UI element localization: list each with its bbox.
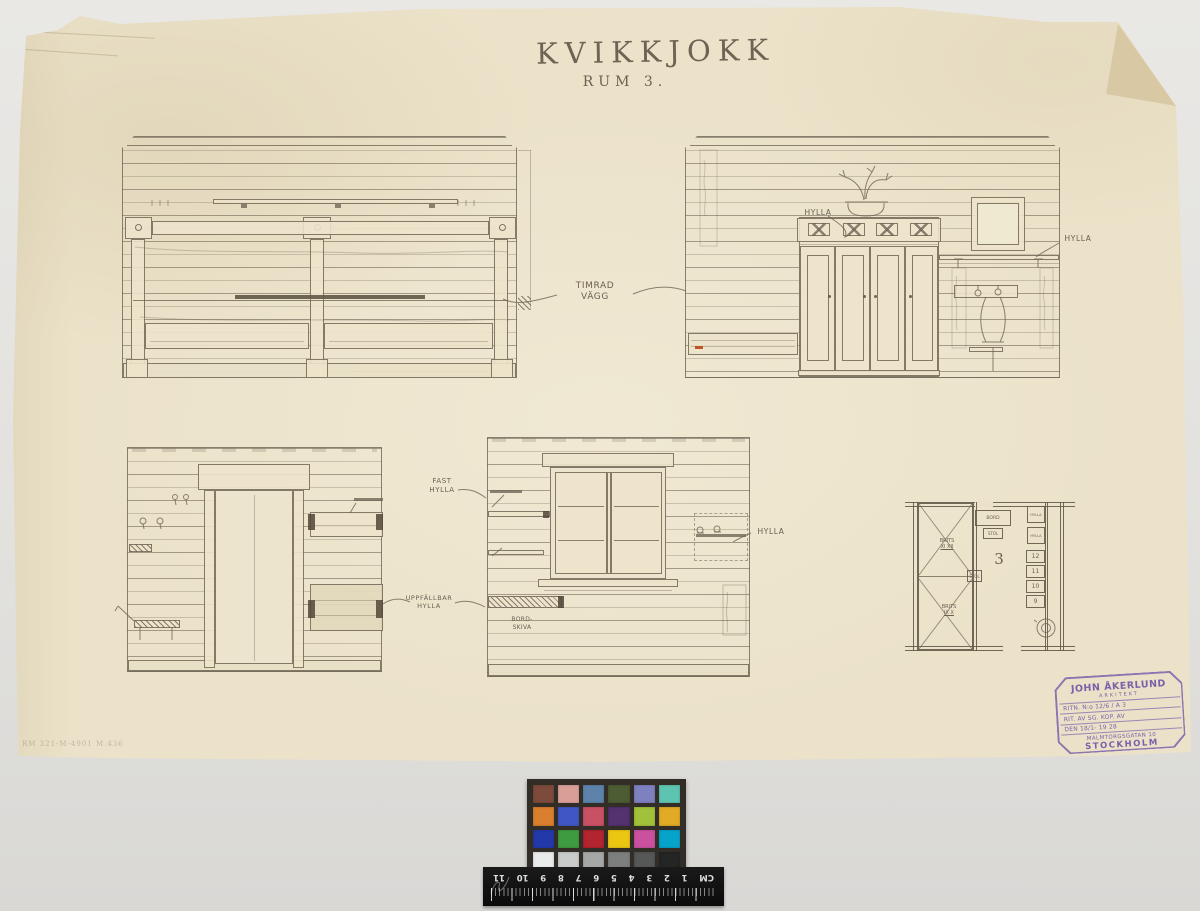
ruler-number: 4 bbox=[629, 872, 635, 882]
ruler-number: 6 bbox=[593, 872, 599, 882]
color-patch bbox=[608, 830, 629, 848]
color-patch bbox=[608, 807, 629, 825]
ruler-number: 7 bbox=[576, 872, 582, 882]
color-patch bbox=[558, 785, 579, 803]
color-patch bbox=[659, 807, 680, 825]
color-patch bbox=[608, 785, 629, 803]
cup-shelf bbox=[696, 534, 746, 537]
color-patch bbox=[634, 807, 655, 825]
sheet-subtitle: RUM 3. bbox=[545, 74, 705, 92]
plan-bunk-upper: BRITS XI XII bbox=[927, 538, 967, 550]
annotation-timrad-vagg: TIMRAD VÄGG bbox=[560, 281, 630, 304]
folding-table-board bbox=[488, 596, 562, 608]
folding-bunk-upper bbox=[310, 512, 383, 537]
red-pencil-mark bbox=[695, 346, 703, 349]
wall-return-line bbox=[530, 150, 531, 310]
color-calibration-card bbox=[527, 779, 686, 876]
shelf bbox=[488, 550, 544, 555]
ruler-number: 10 bbox=[517, 872, 529, 882]
annotation-hylla-window: HYLLA bbox=[753, 527, 789, 536]
color-patch bbox=[533, 807, 554, 825]
washstand-base bbox=[969, 347, 1003, 352]
ruler-number: 1 bbox=[682, 872, 688, 882]
color-patch bbox=[634, 785, 655, 803]
color-patch bbox=[583, 830, 604, 848]
color-patch bbox=[583, 807, 604, 825]
wall-bracket bbox=[129, 544, 152, 552]
section-hatch bbox=[518, 296, 531, 310]
window bbox=[550, 467, 666, 579]
ruler-number: CM bbox=[699, 872, 714, 882]
ruler-major-ticks bbox=[491, 888, 716, 901]
wardrobe bbox=[799, 217, 939, 377]
elevation-window-wall bbox=[487, 437, 750, 677]
color-patch bbox=[634, 830, 655, 848]
annotation-bordskiva: BORD- SKIVA bbox=[500, 616, 544, 631]
ruler-number: 5 bbox=[611, 872, 617, 882]
ruler-number: 8 bbox=[558, 872, 564, 882]
floor-plan: BORD STOL STOL 3 HYLLA HYLLA 12 11 10 9 … bbox=[905, 498, 1075, 660]
ruler-numbers: CM1234567891011 bbox=[493, 872, 714, 882]
plan-chair-2: STOL bbox=[967, 570, 982, 582]
window-head-casing bbox=[542, 453, 674, 467]
elevation-door-wall bbox=[127, 447, 382, 672]
window-sill bbox=[538, 579, 678, 587]
folding-bunk-lower bbox=[310, 584, 383, 631]
wall-return-line bbox=[518, 150, 531, 151]
annotation-hylla-washstand: HYLLA bbox=[1060, 234, 1096, 243]
ruler-number: 3 bbox=[646, 872, 652, 882]
scale-ruler: CM1234567891011 bbox=[483, 867, 724, 906]
plan-bed-10: 10 bbox=[1026, 580, 1045, 593]
folded-corner bbox=[1100, 18, 1184, 114]
shelf-recess bbox=[694, 513, 748, 561]
plan-chair: STOL bbox=[983, 528, 1003, 539]
annotation-uppfallbar-hylla: UPPFÄLLBAR HYLLA bbox=[398, 594, 460, 610]
bracket-shelf bbox=[490, 490, 522, 493]
plan-table: BORD bbox=[975, 510, 1011, 526]
color-patch bbox=[583, 785, 604, 803]
chaise-seat bbox=[134, 620, 180, 628]
elevation-bunk-wall bbox=[122, 136, 517, 378]
fixed-shelf bbox=[488, 511, 550, 517]
color-patch bbox=[659, 830, 680, 848]
color-patch bbox=[533, 830, 554, 848]
paper-crease bbox=[27, 31, 155, 39]
mirror-frame bbox=[971, 197, 1025, 251]
ruler-number: 9 bbox=[540, 872, 546, 882]
ruler-number: 2 bbox=[664, 872, 670, 882]
color-patch bbox=[558, 830, 579, 848]
door-head-casing bbox=[198, 464, 310, 490]
washstand-basin bbox=[954, 285, 1018, 298]
architect-stamp: JOHN ÅKERLUND ARKITEKT RITN. N:o 12/6 / … bbox=[1054, 670, 1186, 755]
plan-room-number: 3 bbox=[989, 550, 1009, 568]
color-patch bbox=[533, 785, 554, 803]
archival-photo: { "document": { "title": "KVIKKJOKK", "s… bbox=[0, 0, 1200, 911]
annotation-hylla-wardrobe: HYLLA bbox=[800, 208, 836, 217]
elevation-wardrobe-wall bbox=[685, 136, 1060, 378]
plan-shelf-2: HYLLA bbox=[1027, 527, 1045, 544]
plan-bunk-lower: BRITS IX X bbox=[929, 604, 969, 616]
sheet-title: KVIKKJOKK bbox=[536, 32, 737, 72]
bracket-shelf bbox=[354, 498, 383, 501]
color-patch-grid bbox=[533, 785, 680, 870]
plan-bed-9: 9 bbox=[1026, 595, 1045, 608]
plan-shelf-1: HYLLA bbox=[1027, 506, 1045, 523]
plan-bed-11: 11 bbox=[1026, 565, 1045, 578]
margin-note: RM 321-M-4901 M.436 bbox=[22, 740, 142, 749]
annotation-fast-hylla: FAST HYLLA bbox=[420, 477, 464, 495]
door-leaf bbox=[215, 490, 293, 664]
shelf bbox=[939, 255, 1059, 260]
ruler-scribble bbox=[485, 869, 515, 899]
drawing-sheet: KVIKKJOKK RUM 3. RM 321-M-4901 M.436 bbox=[0, 0, 1200, 770]
color-patch bbox=[659, 785, 680, 803]
plan-bed-12: 12 bbox=[1026, 550, 1045, 563]
color-patch bbox=[558, 807, 579, 825]
paper-crease bbox=[26, 49, 118, 56]
